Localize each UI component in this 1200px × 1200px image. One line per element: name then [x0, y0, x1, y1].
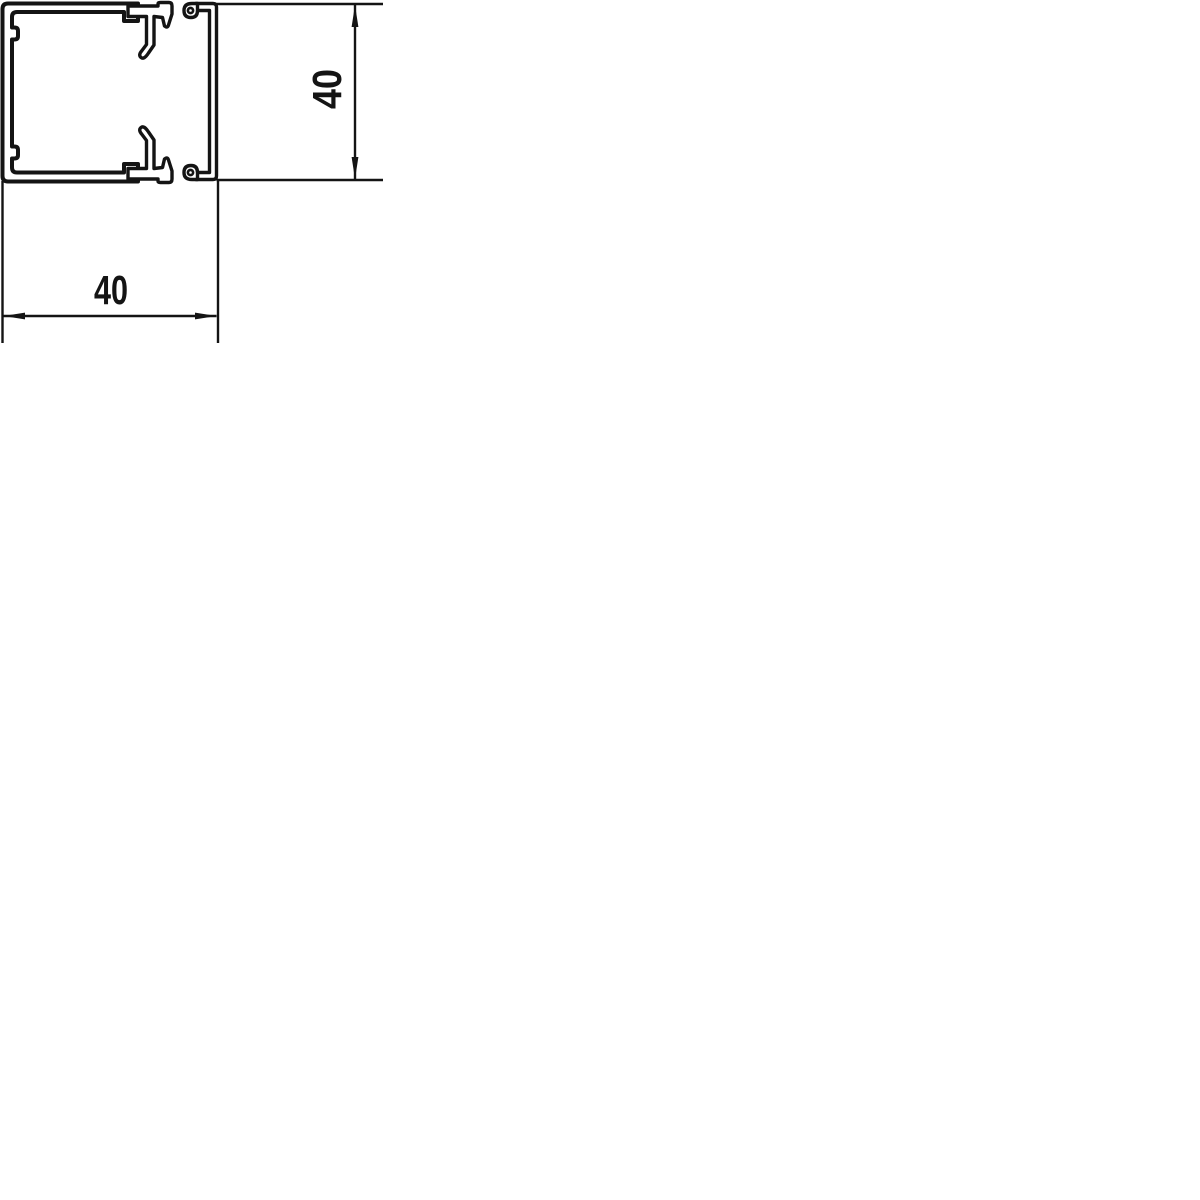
- width-dimension-label: 40: [94, 267, 128, 313]
- cover-hook-top-hole: [188, 8, 193, 13]
- arrow-right-icon: [195, 313, 217, 320]
- duct-body-group: [3, 3, 173, 183]
- cover-profile: [196, 4, 217, 180]
- cover-hook-bottom-hole: [188, 170, 193, 175]
- technical-drawing-canvas: 40 40: [0, 0, 1200, 1200]
- arrow-up-icon: [352, 5, 359, 27]
- height-dimension-label: 40: [304, 69, 350, 109]
- arrow-down-icon: [352, 157, 359, 179]
- trunking-cross-section-drawing: 40 40: [0, 0, 1200, 1200]
- width-dimension-group: 40: [3, 180, 219, 343]
- duct-body-profile: [3, 4, 139, 182]
- arrow-left-icon: [4, 313, 26, 320]
- snap-clip-top: [128, 3, 172, 59]
- snap-clip-bottom: [128, 127, 172, 183]
- duct-cover-group: [184, 4, 217, 180]
- height-dimension-group: 40: [217, 4, 384, 180]
